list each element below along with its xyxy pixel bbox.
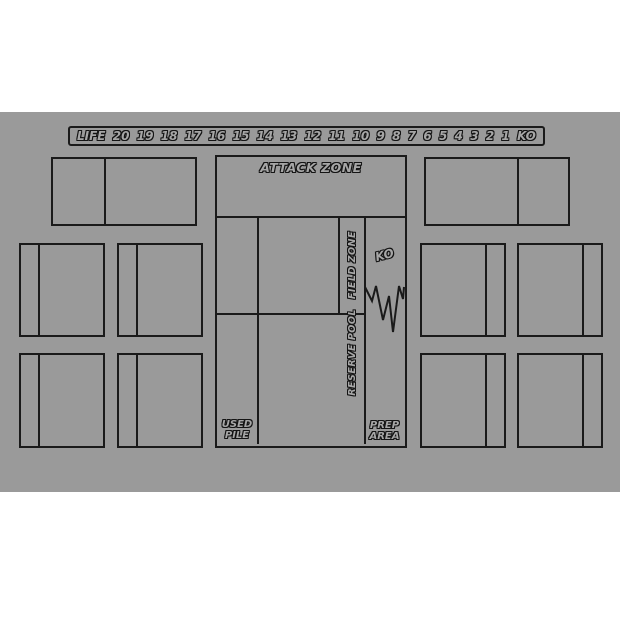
- card-slot-left-row2-col2: [117, 353, 203, 448]
- prep-area-label: PREP AREA: [369, 420, 399, 442]
- life-value-11: 11: [329, 129, 346, 143]
- prep-area-label-line1: PREP: [369, 420, 399, 431]
- center-zone-block: ATTACK ZONE USED PILE FIELD Z: [215, 155, 407, 448]
- field-zone-label: FIELD ZONE: [347, 231, 358, 299]
- slot-divider-line: [104, 159, 106, 224]
- life-value-20: 20: [113, 129, 130, 143]
- life-value-4: 4: [455, 129, 463, 143]
- playmat-image: LIFE 20 19 18 17 16 15 14 13 12 11 10 9 …: [0, 0, 620, 620]
- life-value-6: 6: [423, 129, 431, 143]
- life-value-13: 13: [281, 129, 298, 143]
- card-slot-left-row1-col2: [117, 243, 203, 337]
- ko-burst-icon: [364, 284, 405, 336]
- life-value-18: 18: [161, 129, 178, 143]
- card-slot-right-row2-col1: [420, 353, 506, 448]
- slot-tab-line: [485, 355, 487, 446]
- life-label: LIFE: [77, 129, 106, 143]
- card-slot-right-row1-col1: [420, 243, 506, 337]
- used-pile-label-line2: PILE: [222, 430, 252, 441]
- card-slot-left-row2-col1: [19, 353, 105, 448]
- slot-tab-line: [38, 355, 40, 446]
- ko-label: KO: [374, 246, 396, 264]
- slot-tab-line: [485, 245, 487, 335]
- prep-area-zone: PREP AREA: [364, 420, 405, 442]
- playmat: LIFE 20 19 18 17 16 15 14 13 12 11 10 9 …: [0, 112, 620, 492]
- life-value-15: 15: [233, 129, 250, 143]
- card-slot-right-row2-col2: [517, 353, 603, 448]
- life-value-16: 16: [209, 129, 226, 143]
- slot-tab-line: [582, 245, 584, 335]
- slot-divider-line: [517, 159, 519, 224]
- center-main-area: USED PILE FIELD ZONE RESERVE POOL: [217, 218, 405, 444]
- life-value-1: 1: [501, 129, 509, 143]
- ko-zone: KO: [363, 243, 406, 267]
- card-slot-left-row1-col1: [19, 243, 105, 337]
- slot-tab-line: [136, 245, 138, 335]
- reserve-pool-label: RESERVE POOL: [347, 309, 358, 396]
- card-slot-pair-top-right: [424, 157, 570, 226]
- life-value-12: 12: [305, 129, 322, 143]
- life-value-17: 17: [185, 129, 202, 143]
- life-value-3: 3: [470, 129, 478, 143]
- slot-tab-line: [582, 355, 584, 446]
- used-pile-zone: USED PILE: [217, 218, 259, 444]
- middle-divider-line: [217, 313, 366, 315]
- attack-zone: ATTACK ZONE: [217, 157, 405, 218]
- used-pile-label-line1: USED: [222, 419, 252, 430]
- card-slot-pair-top-left: [51, 157, 197, 226]
- life-value-5: 5: [439, 129, 447, 143]
- life-counter-track: LIFE 20 19 18 17 16 15 14 13 12 11 10 9 …: [68, 126, 545, 146]
- card-slot-right-row1-col2: [517, 243, 603, 337]
- slot-tab-line: [38, 245, 40, 335]
- prep-area-label-line2: AREA: [369, 431, 399, 442]
- life-value-ko: KO: [517, 129, 536, 143]
- life-value-7: 7: [408, 129, 416, 143]
- life-value-10: 10: [352, 129, 369, 143]
- used-pile-label: USED PILE: [222, 419, 252, 444]
- slot-tab-line: [136, 355, 138, 446]
- reserve-pool-zone: RESERVE POOL: [340, 316, 364, 388]
- life-value-14: 14: [257, 129, 274, 143]
- life-value-9: 9: [376, 129, 384, 143]
- attack-zone-label: ATTACK ZONE: [260, 160, 362, 175]
- life-value-19: 19: [137, 129, 154, 143]
- life-value-8: 8: [392, 129, 400, 143]
- field-zone: FIELD ZONE: [340, 218, 364, 313]
- life-value-2: 2: [486, 129, 494, 143]
